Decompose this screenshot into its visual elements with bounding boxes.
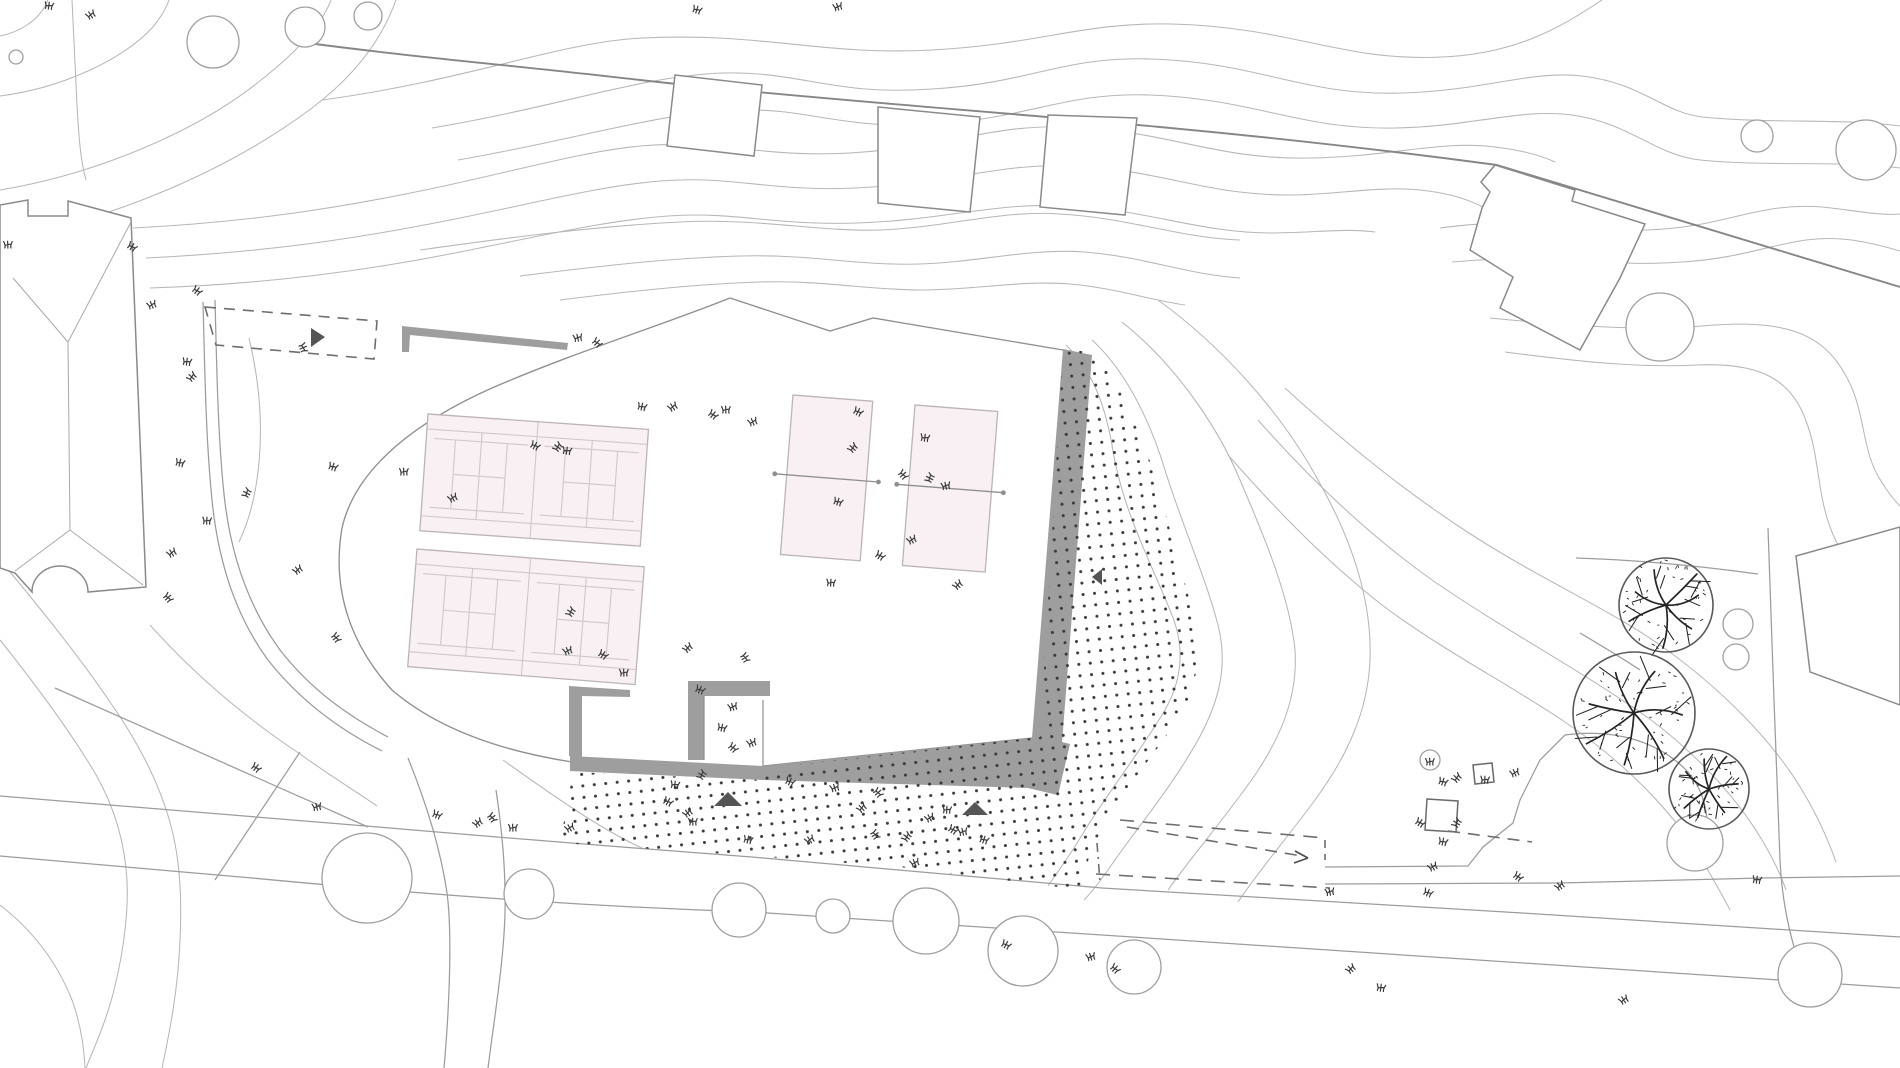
vegetation-glyph [1554, 880, 1565, 891]
vegetation-glyph [175, 458, 185, 467]
vegetation-glyph [573, 334, 583, 342]
vegetation-glyph [509, 824, 518, 831]
site-plan-page [0, 0, 1900, 1068]
vegetation-glyph [251, 762, 262, 773]
vegetation-glyph [1451, 772, 1462, 783]
vegetation-glyph [1423, 888, 1434, 898]
detailed-tree [1619, 558, 1713, 655]
northeast-building [1470, 165, 1645, 350]
site-plan-svg [0, 0, 1900, 1068]
tennis-court-pair [420, 414, 649, 546]
left-house [0, 200, 146, 592]
vegetation-glyph [166, 548, 177, 558]
large-pad-square [1425, 799, 1458, 832]
vegetation-glyph [1345, 963, 1356, 974]
vegetation-glyph [186, 371, 197, 382]
vegetation-glyph [487, 812, 498, 823]
vegetation-glyph [182, 357, 192, 365]
vegetation-glyph [833, 2, 843, 11]
vegetation-glyph [292, 564, 303, 575]
detailed-tree [1573, 652, 1695, 774]
site-plan-drawing [0, 0, 1900, 1068]
vegetation-glyph [85, 10, 96, 20]
vegetation-glyph [1510, 768, 1520, 778]
small-pad-square [1473, 763, 1494, 784]
vegetation-glyph [692, 5, 702, 15]
vegetation-glyph [163, 592, 174, 603]
vegetation-glyph [1618, 995, 1629, 1005]
vegetation-glyph [328, 462, 338, 472]
vegetation-glyph [1427, 862, 1438, 872]
vegetation-glyph [202, 517, 211, 525]
vegetation-glyph [331, 632, 342, 643]
detailed-tree [1669, 749, 1749, 829]
vegetation-glyph [192, 285, 203, 296]
vegetation-glyph [432, 810, 443, 820]
small-building-b [878, 107, 980, 212]
vegetation-glyph [472, 817, 483, 828]
vegetation-glyph [44, 1, 54, 9]
tennis-court-pair [408, 549, 645, 685]
detailed-trees [1573, 558, 1749, 829]
small-building-a [667, 75, 762, 156]
vegetation-glyph [1752, 875, 1762, 883]
vegetation-glyph [298, 343, 308, 353]
vegetation-glyph [242, 487, 252, 498]
walkway-arrowhead [1294, 851, 1308, 863]
vegetation-glyph [147, 300, 157, 310]
vegetation-glyph [1438, 837, 1448, 846]
vegetation-glyph [1513, 871, 1524, 882]
vegetation-glyph [1438, 777, 1448, 787]
vegetation-glyph [1376, 983, 1386, 991]
marker-triangle [311, 328, 325, 347]
right-edge-building [1796, 527, 1900, 705]
vegetation-glyph [1086, 952, 1096, 961]
northwest-wall [402, 326, 568, 352]
small-building-c [1040, 115, 1137, 215]
vegetation-glyph [1415, 817, 1426, 828]
